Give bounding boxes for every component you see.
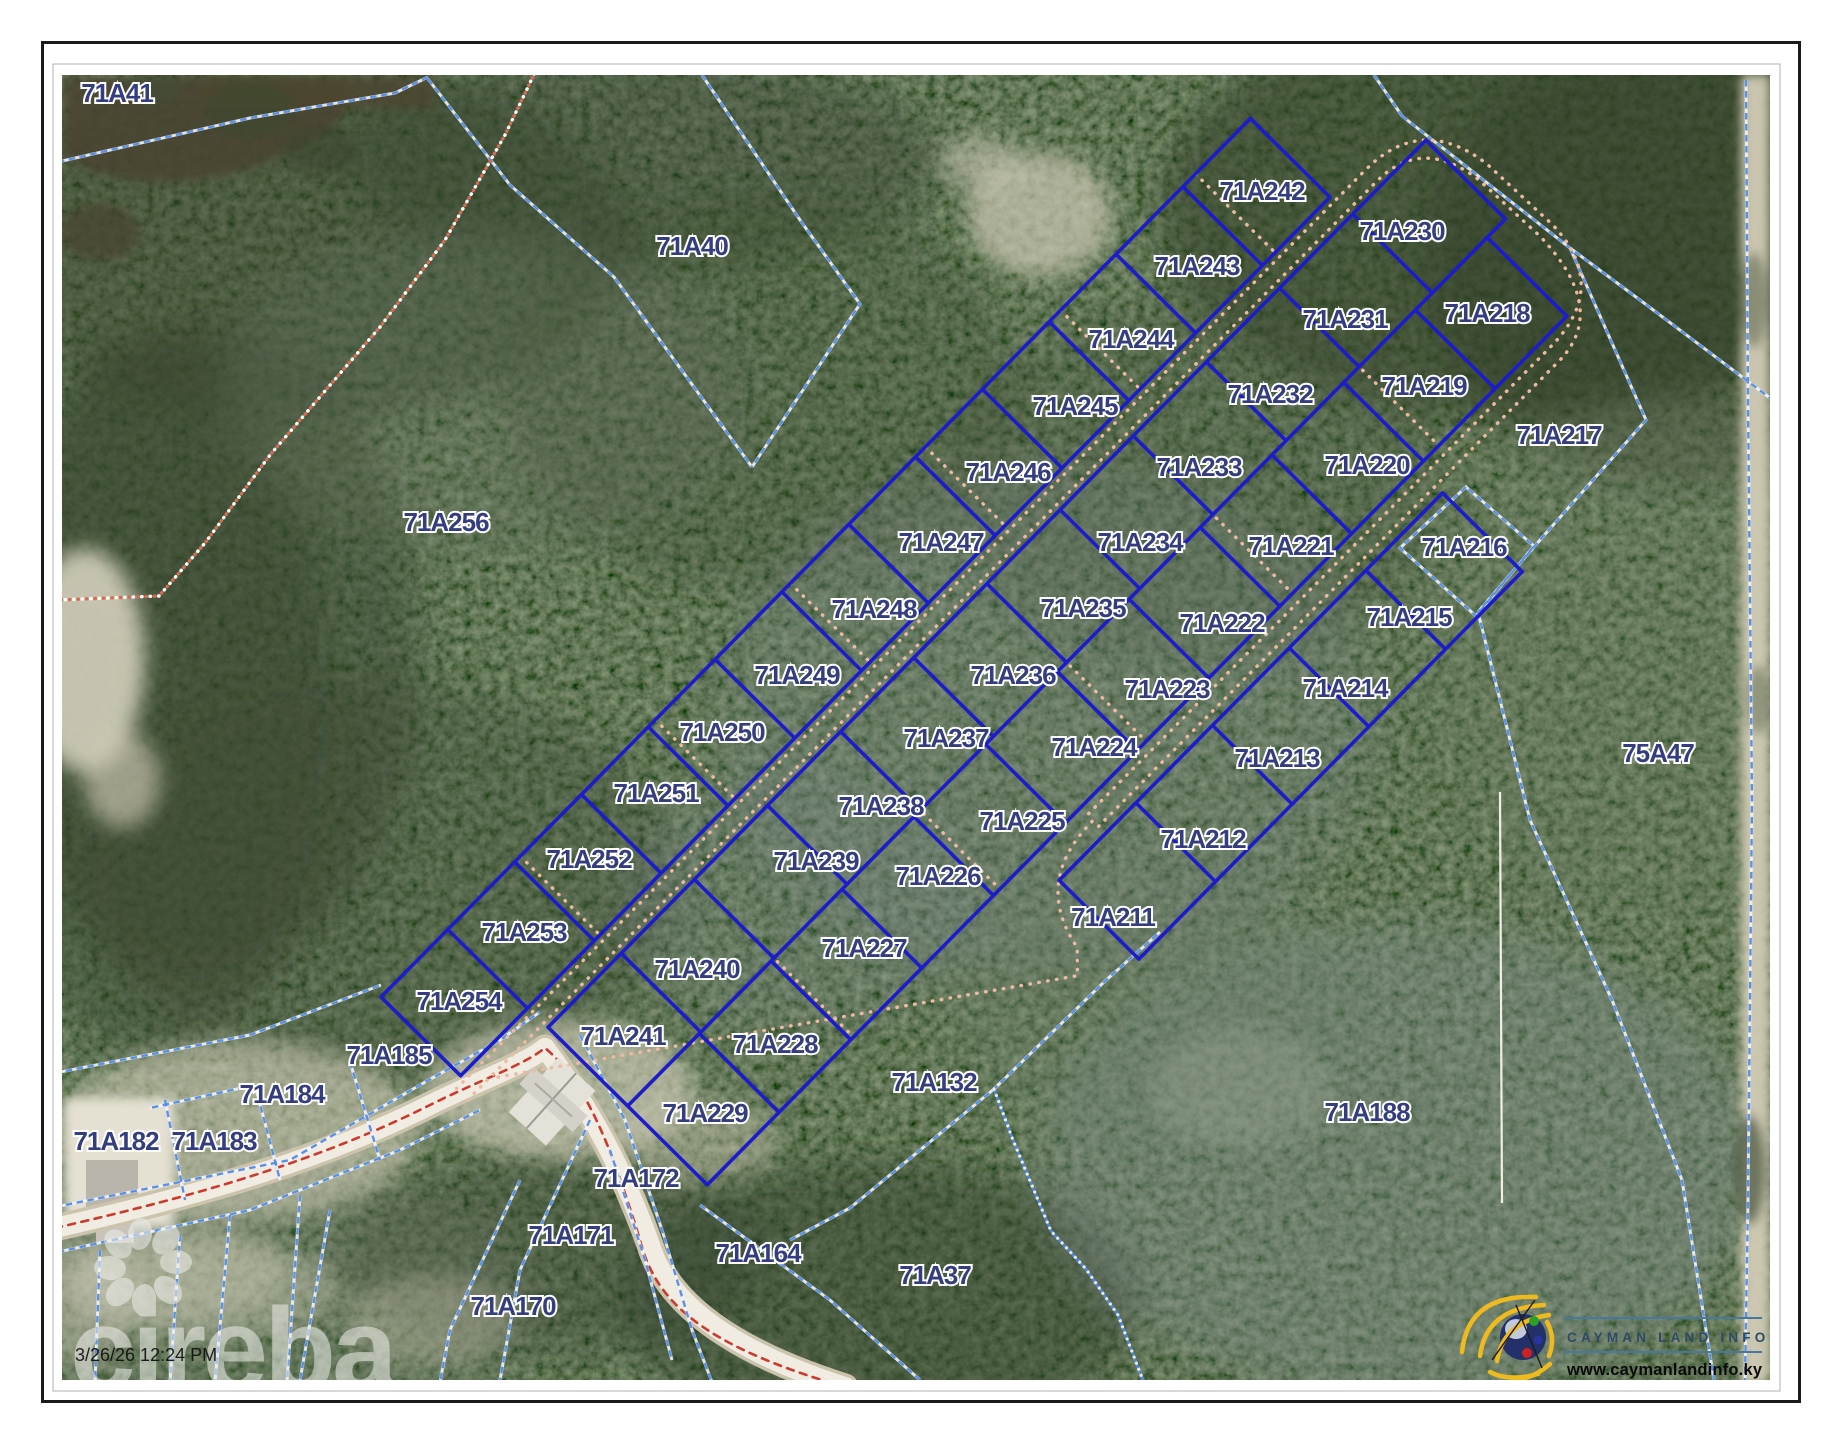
svg-text:71A182: 71A182 xyxy=(73,1126,159,1156)
svg-text:71A231: 71A231 xyxy=(1302,304,1388,334)
svg-text:71A238: 71A238 xyxy=(838,791,924,821)
svg-text:71A214: 71A214 xyxy=(1302,673,1389,703)
svg-text:71A225: 71A225 xyxy=(979,806,1065,836)
svg-text:71A250: 71A250 xyxy=(679,717,765,747)
svg-text:71A237: 71A237 xyxy=(903,723,989,753)
svg-text:71A224: 71A224 xyxy=(1051,732,1138,762)
svg-text:71A188: 71A188 xyxy=(1324,1097,1410,1127)
svg-text:71A215: 71A215 xyxy=(1366,602,1452,632)
svg-text:71A172: 71A172 xyxy=(593,1163,679,1193)
svg-text:71A256: 71A256 xyxy=(403,507,489,537)
svg-text:71A218: 71A218 xyxy=(1444,298,1530,328)
svg-text:71A226: 71A226 xyxy=(895,861,981,891)
svg-text:71A223: 71A223 xyxy=(1124,674,1210,704)
svg-text:71A229: 71A229 xyxy=(662,1098,748,1128)
svg-text:71A222: 71A222 xyxy=(1179,608,1265,638)
svg-text:71A220: 71A220 xyxy=(1324,450,1410,480)
svg-text:71A239: 71A239 xyxy=(773,846,859,876)
svg-text:75A47: 75A47 xyxy=(1622,738,1694,768)
svg-text:71A164: 71A164 xyxy=(715,1238,802,1268)
svg-text:71A230: 71A230 xyxy=(1359,216,1445,246)
svg-text:www.caymanlandinfo.ky: www.caymanlandinfo.ky xyxy=(1566,1361,1763,1379)
svg-text:71A236: 71A236 xyxy=(970,660,1056,690)
svg-text:71A185: 71A185 xyxy=(346,1040,432,1070)
svg-text:71A253: 71A253 xyxy=(481,917,567,947)
svg-text:71A235: 71A235 xyxy=(1040,593,1126,623)
svg-text:71A243: 71A243 xyxy=(1154,251,1240,281)
svg-text:71A216: 71A216 xyxy=(1421,532,1507,562)
svg-text:71A40: 71A40 xyxy=(656,231,728,261)
svg-text:71A37: 71A37 xyxy=(899,1260,971,1290)
svg-text:71A211: 71A211 xyxy=(1071,902,1155,932)
svg-text:71A183: 71A183 xyxy=(171,1126,257,1156)
svg-text:71A233: 71A233 xyxy=(1156,452,1242,482)
svg-text:71A244: 71A244 xyxy=(1088,324,1175,354)
svg-text:71A254: 71A254 xyxy=(416,986,503,1016)
svg-text:71A217: 71A217 xyxy=(1516,420,1602,450)
svg-text:71A248: 71A248 xyxy=(831,594,917,624)
svg-text:71A252: 71A252 xyxy=(546,844,632,874)
svg-text:71A247: 71A247 xyxy=(898,527,984,557)
svg-text:71A41: 71A41 xyxy=(81,78,153,108)
svg-text:71A242: 71A242 xyxy=(1219,176,1305,206)
svg-text:71A234: 71A234 xyxy=(1097,527,1184,557)
svg-text:71A228: 71A228 xyxy=(732,1029,818,1059)
svg-text:71A212: 71A212 xyxy=(1160,824,1246,854)
svg-text:3/26/26 12:24 PM: 3/26/26 12:24 PM xyxy=(75,1345,217,1365)
svg-text:71A251: 71A251 xyxy=(613,778,699,808)
svg-text:71A184: 71A184 xyxy=(239,1079,326,1109)
svg-text:71A221: 71A221 xyxy=(1248,531,1334,561)
svg-text:71A171: 71A171 xyxy=(528,1220,614,1250)
svg-text:71A213: 71A213 xyxy=(1234,743,1320,773)
svg-text:71A219: 71A219 xyxy=(1381,371,1467,401)
svg-text:CAYMAN LAND INFO: CAYMAN LAND INFO xyxy=(1567,1330,1769,1345)
svg-text:71A232: 71A232 xyxy=(1227,379,1313,409)
svg-text:71A170: 71A170 xyxy=(470,1291,556,1321)
svg-text:71A245: 71A245 xyxy=(1032,391,1118,421)
svg-text:71A249: 71A249 xyxy=(754,660,840,690)
svg-text:71A246: 71A246 xyxy=(965,457,1051,487)
svg-text:71A241: 71A241 xyxy=(580,1021,666,1051)
svg-text:71A132: 71A132 xyxy=(891,1067,977,1097)
svg-text:71A227: 71A227 xyxy=(821,933,907,963)
svg-text:71A240: 71A240 xyxy=(654,954,740,984)
